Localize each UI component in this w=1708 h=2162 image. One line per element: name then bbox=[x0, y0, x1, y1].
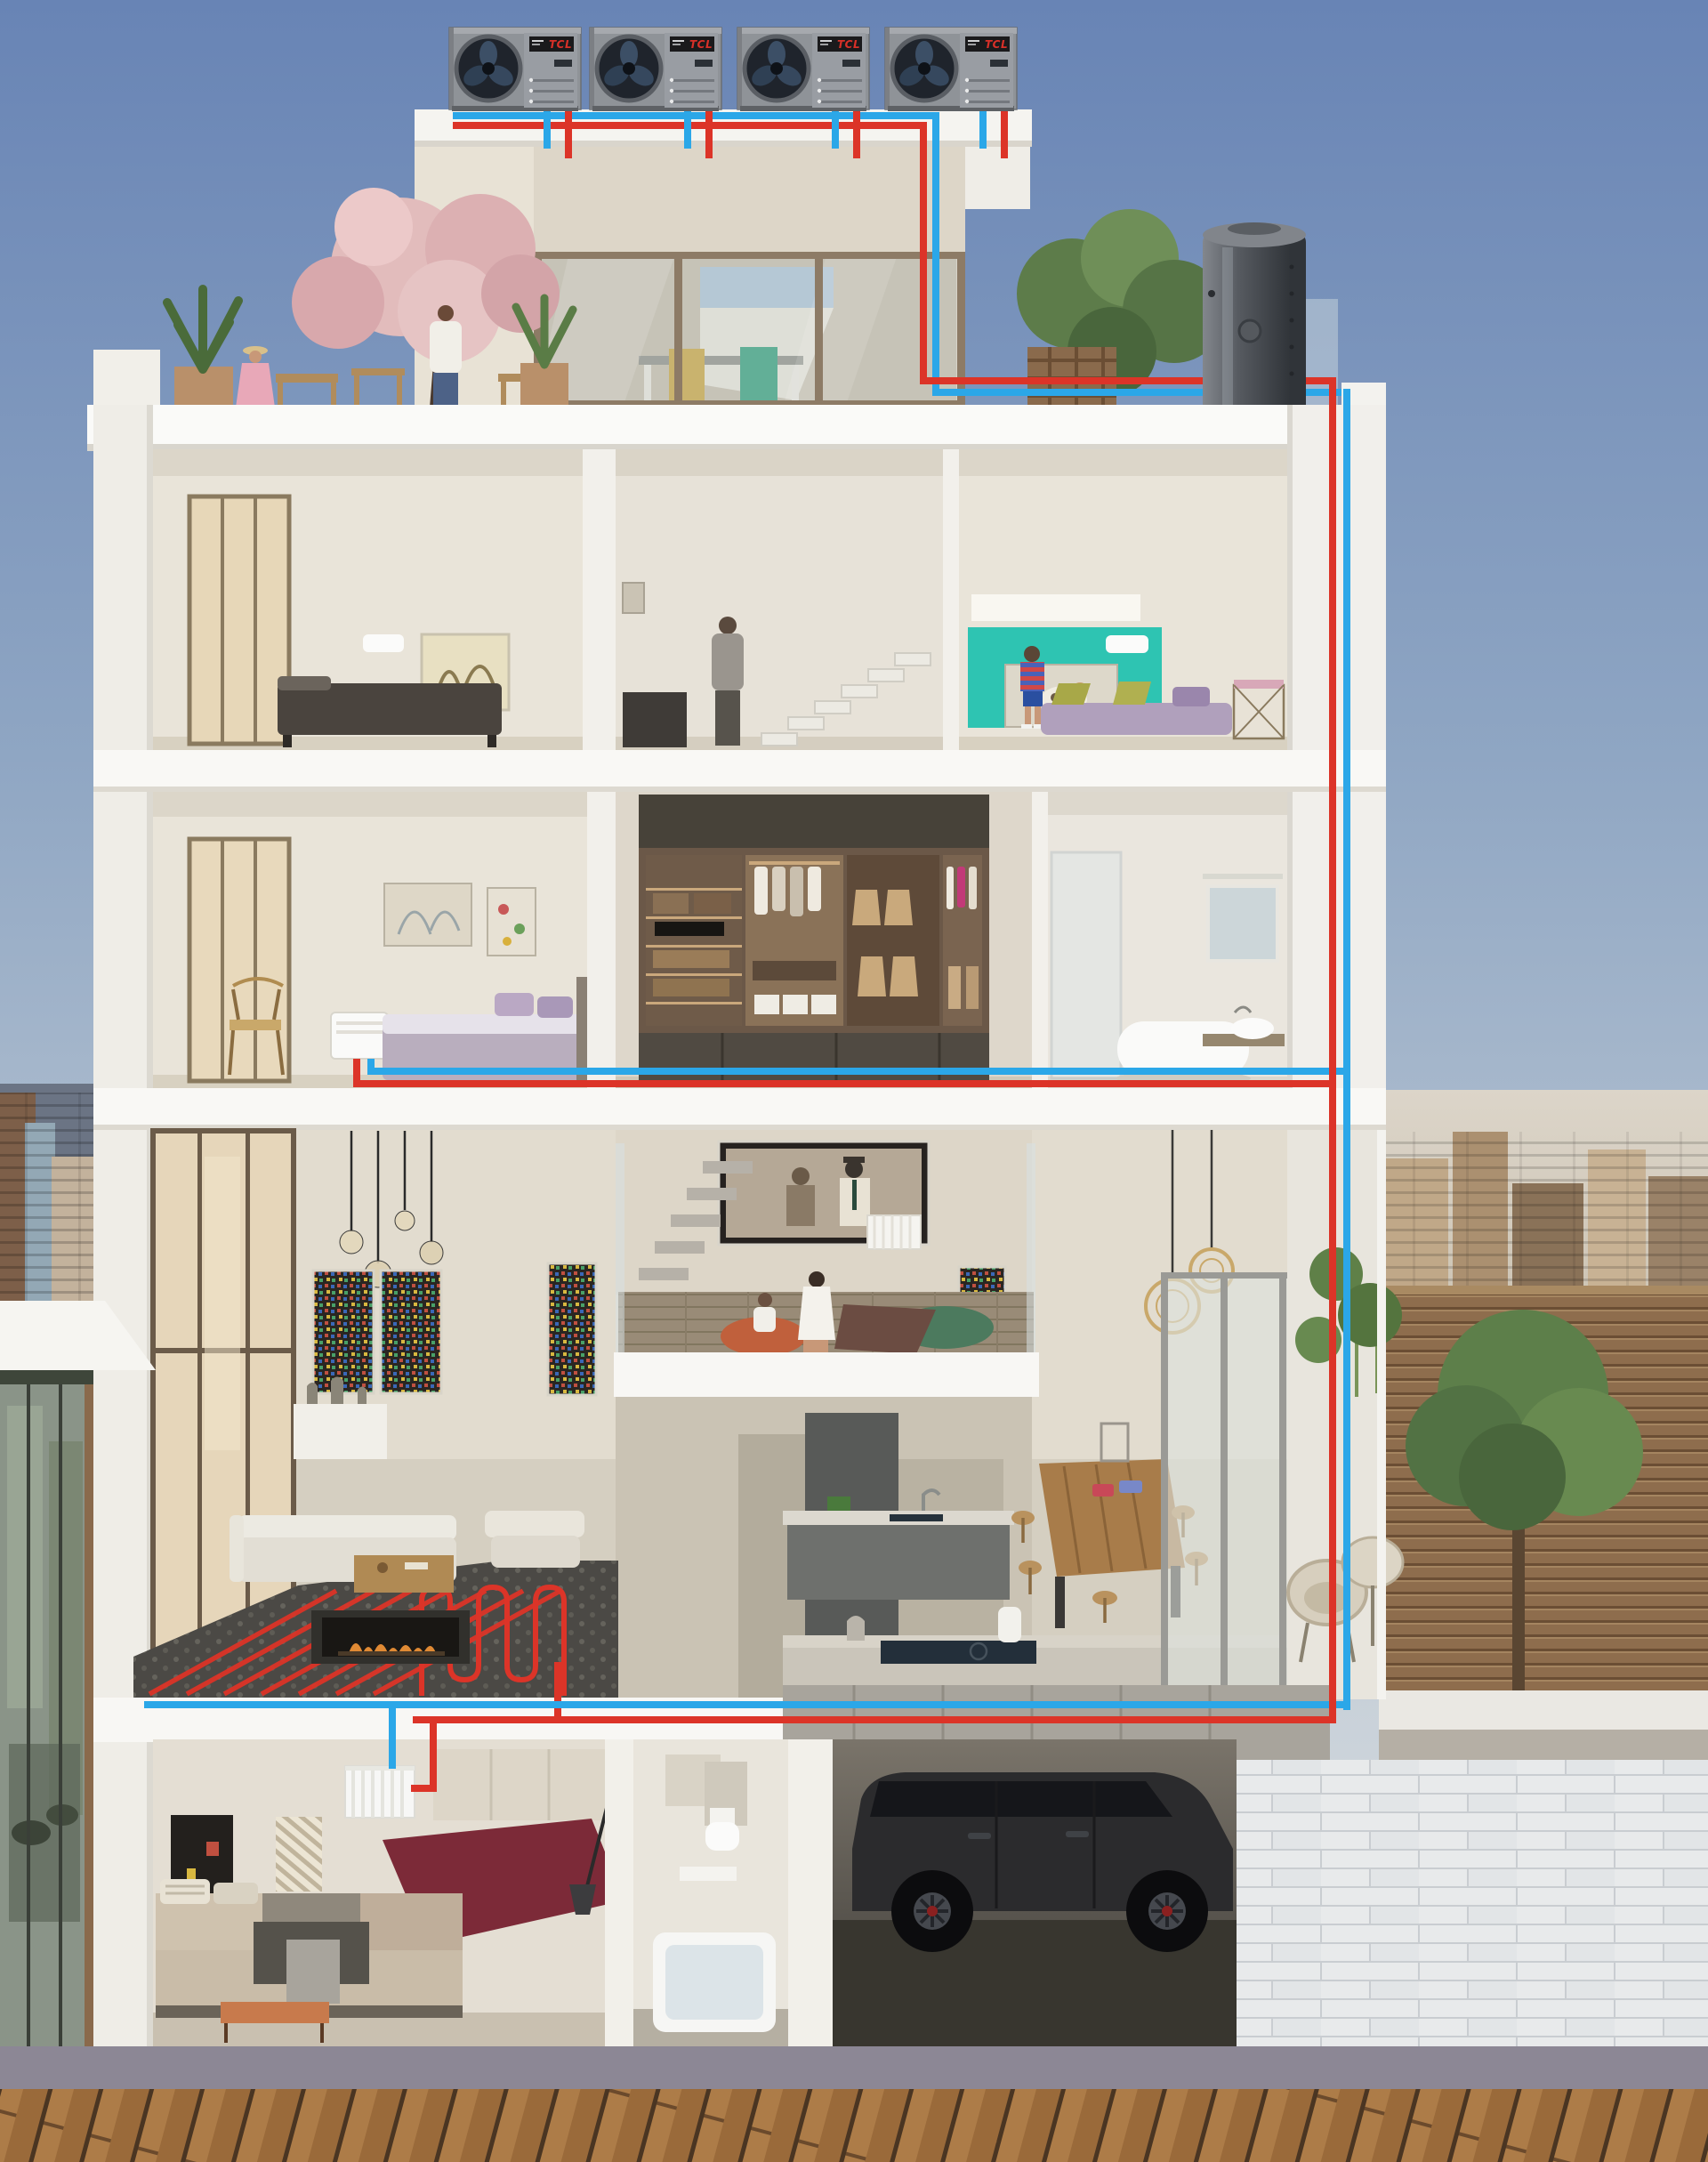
fourth-floor bbox=[153, 449, 1287, 750]
basement-bathroom bbox=[633, 1739, 788, 2046]
basin bbox=[680, 1867, 737, 1881]
supply-run-ground bbox=[413, 1716, 1336, 1723]
fireplace bbox=[311, 1610, 470, 1664]
art-mezz-left bbox=[548, 1263, 596, 1395]
lower-left-glass-facade bbox=[0, 1384, 93, 2050]
cutaway-svg: TCL bbox=[0, 0, 1708, 2162]
supply-riser bbox=[1329, 377, 1336, 1723]
kettle bbox=[847, 1616, 865, 1641]
toilet bbox=[705, 1808, 739, 1851]
garage bbox=[833, 1739, 1237, 2062]
supply-run-floor3 bbox=[353, 1080, 1336, 1087]
tiled-garage-wall bbox=[1237, 1760, 1708, 2062]
man-in-hall bbox=[712, 617, 744, 746]
kitchen-glass-doors bbox=[1161, 1272, 1287, 1699]
wire-side-table bbox=[1234, 680, 1284, 738]
neighbour-roof-terrace bbox=[1379, 1286, 1708, 1760]
return-run-floor3 bbox=[367, 1068, 1350, 1075]
art-map-2 bbox=[381, 1271, 441, 1393]
return-riser bbox=[1343, 389, 1350, 1710]
hall-frame bbox=[623, 583, 644, 613]
return-manifold bbox=[453, 112, 939, 119]
wall-ac-bedroom bbox=[363, 634, 404, 652]
terrace-ledge bbox=[1379, 1690, 1708, 1730]
white-stool bbox=[998, 1607, 1021, 1642]
return-run-ground bbox=[144, 1701, 1350, 1708]
terrace-parapet bbox=[93, 350, 160, 407]
wall-b-1 bbox=[605, 1739, 633, 2046]
city-skyline-right bbox=[1381, 1090, 1708, 1308]
art-map-1 bbox=[313, 1271, 374, 1393]
coffee-table bbox=[354, 1555, 454, 1593]
bedroom-4f-window bbox=[189, 496, 289, 744]
return-downpipe-penthouse bbox=[932, 112, 939, 396]
basement-radiator bbox=[345, 1766, 415, 1818]
striped-stair-panel bbox=[276, 1817, 322, 1892]
artworks-master bbox=[384, 883, 536, 956]
basement-wardrobe bbox=[433, 1749, 607, 1820]
wall-4f-1 bbox=[583, 449, 616, 750]
living-floor bbox=[133, 1130, 1403, 1700]
slab-4-3 bbox=[93, 750, 1386, 792]
grey-kerb bbox=[0, 2046, 1708, 2089]
master-window bbox=[189, 839, 289, 1081]
mezzanine-slab bbox=[614, 1352, 1039, 1397]
cutaway-scene: TCL bbox=[0, 0, 1708, 2162]
left-exterior-wall bbox=[93, 405, 153, 2046]
mezzanine bbox=[548, 1130, 1039, 1399]
wall-4f-2 bbox=[943, 449, 959, 750]
wardrobe bbox=[639, 795, 989, 1081]
vanity-mirror bbox=[1203, 874, 1283, 961]
wheel-front bbox=[891, 1870, 973, 1952]
tub-basement bbox=[653, 1932, 776, 2032]
fan-coil-unit bbox=[331, 1012, 388, 1059]
basement bbox=[153, 1739, 1708, 2062]
wall-3f-1 bbox=[587, 792, 616, 1088]
wall-ac-kids bbox=[1106, 635, 1148, 653]
supply-downpipe-penthouse bbox=[920, 122, 927, 384]
concrete-cube-table bbox=[286, 1940, 340, 2004]
hall-console bbox=[623, 692, 687, 747]
cooktop bbox=[881, 1641, 1036, 1664]
mezz-radiator bbox=[867, 1215, 921, 1249]
wheel-rear bbox=[1126, 1870, 1208, 1952]
garage-pillar bbox=[788, 1739, 833, 2046]
hot-water-tank bbox=[1203, 222, 1306, 416]
slab-3-2 bbox=[93, 1088, 1386, 1130]
penthouse-glass-doors bbox=[534, 252, 965, 407]
kids-sofa bbox=[1041, 682, 1232, 735]
wall-3f-2 bbox=[1032, 792, 1048, 1088]
timber-deck bbox=[0, 2089, 1708, 2162]
penthouse-side-block bbox=[965, 147, 1030, 209]
ceiling-light-recess bbox=[971, 594, 1140, 621]
third-floor bbox=[153, 792, 1350, 1088]
glass-shower bbox=[1051, 852, 1121, 1078]
